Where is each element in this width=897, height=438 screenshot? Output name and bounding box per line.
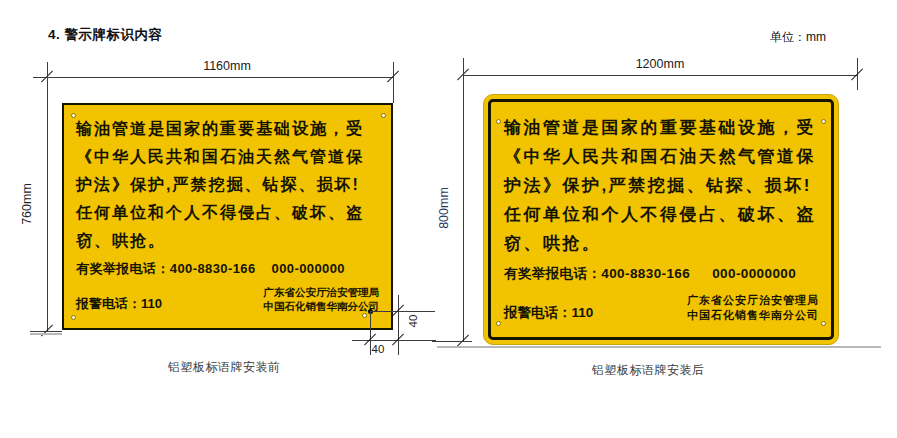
extension-line — [30, 331, 62, 332]
leader-line — [370, 311, 435, 312]
ground-line — [437, 346, 881, 348]
unit-label: 单位：mm — [770, 29, 826, 46]
extension-line — [33, 77, 47, 78]
body-line: 任何单位和个人不得侵占、破坏、盗 — [504, 200, 819, 229]
hole-offset-x-label: 40 — [366, 343, 390, 355]
height-dim-label: 800mm — [437, 176, 451, 240]
extension-line — [393, 62, 394, 103]
extension-line — [857, 58, 858, 90]
body-line: 输油管道是国家的重要基础设施，受 — [504, 113, 819, 142]
sign-footer: 报警电话：110 广东省公安厅治安管理局 中国石化销售华南分公司 — [76, 286, 379, 313]
org-line: 中国石化销售华南分公司 — [264, 300, 380, 314]
hotline-row: 有奖举报电话：400-8830-166 000-0000000 — [504, 265, 819, 283]
hotline-label: 有奖举报电话：400-8830-166 — [504, 265, 690, 283]
hotline-label: 有奖举报电话：400-8830-166 — [76, 260, 256, 278]
sign-footer: 报警电话：110 广东省公安厅治安管理局 中国石化销售华南分公司 — [504, 293, 819, 322]
height-dim-line — [47, 77, 48, 331]
hotline-alt-number: 000-000000 — [272, 261, 345, 276]
hotline-alt-number: 000-0000000 — [712, 266, 796, 281]
width-dim-line — [463, 75, 857, 76]
sign-body-text: 输油管道是国家的重要基础设施，受 《中华人民共和国石油天然气管道保 护法》保护,… — [504, 113, 819, 258]
body-line: 《中华人民共和国石油天然气管道保 — [76, 143, 379, 171]
warning-sign-before: 输油管道是国家的重要基础设施，受 《中华人民共和国石油天然气管道保 护法》保护,… — [62, 103, 393, 330]
body-line: 输油管道是国家的重要基础设施，受 — [76, 115, 379, 143]
sign-content: 输油管道是国家的重要基础设施，受 《中华人民共和国石油天然气管道保 护法》保护,… — [491, 102, 831, 337]
hole-offset-y-label: 40 — [407, 307, 419, 335]
drawing-sheet: 4. 警示牌标识内容 单位：mm 1160mm 760mm 输油管道是国家的重要… — [0, 0, 897, 438]
issuing-orgs: 广东省公安厅治安管理局 中国石化销售华南分公司 — [264, 286, 380, 313]
section-title: 4. 警示牌标识内容 — [48, 26, 163, 44]
extension-line — [463, 58, 464, 75]
body-line: 任何单位和个人不得侵占、破坏、盗 — [76, 199, 379, 227]
width-dim-line — [47, 77, 393, 78]
width-dim-label: 1160mm — [170, 59, 284, 73]
body-line: 窃、哄抢。 — [504, 229, 819, 258]
figure-caption-before: 铝塑板标语牌安装前 — [168, 359, 281, 376]
org-line: 广东省公安厅治安管理局 — [264, 286, 380, 300]
figure-caption-after: 铝塑板标语牌安装后 — [592, 362, 705, 379]
hotline-row: 有奖举报电话：400-8830-166 000-000000 — [76, 260, 379, 278]
width-dim-label: 1200mm — [600, 57, 720, 71]
police-phone-label: 报警电话：110 — [504, 304, 593, 322]
extension-line — [432, 341, 472, 342]
extension-line — [47, 62, 48, 77]
org-line: 广东省公安厅治安管理局 — [687, 293, 819, 308]
body-line: 《中华人民共和国石油天然气管道保 — [504, 142, 819, 171]
sign-body-text: 输油管道是国家的重要基础设施，受 《中华人民共和国石油天然气管道保 护法》保护,… — [76, 115, 379, 255]
org-line: 中国石化销售华南分公司 — [687, 308, 819, 323]
height-dim-label: 760mm — [20, 172, 34, 236]
body-line: 窃、哄抢。 — [76, 227, 379, 255]
police-phone-label: 报警电话：110 — [76, 295, 162, 313]
issuing-orgs: 广东省公安厅治安管理局 中国石化销售华南分公司 — [687, 293, 819, 322]
sign-content: 输油管道是国家的重要基础设施，受 《中华人民共和国石油天然气管道保 护法》保护,… — [64, 105, 391, 328]
offset-dim-line-vertical — [398, 295, 399, 355]
body-line: 护法》保护,严禁挖掘、钻探、损坏! — [76, 171, 379, 199]
body-line: 护法》保护,严禁挖掘、钻探、损坏! — [504, 171, 819, 200]
height-dim-line — [463, 75, 464, 341]
warning-sign-after: 输油管道是国家的重要基础设施，受 《中华人民共和国石油天然气管道保 护法》保护,… — [483, 94, 839, 345]
baseline-segment — [30, 333, 62, 335]
